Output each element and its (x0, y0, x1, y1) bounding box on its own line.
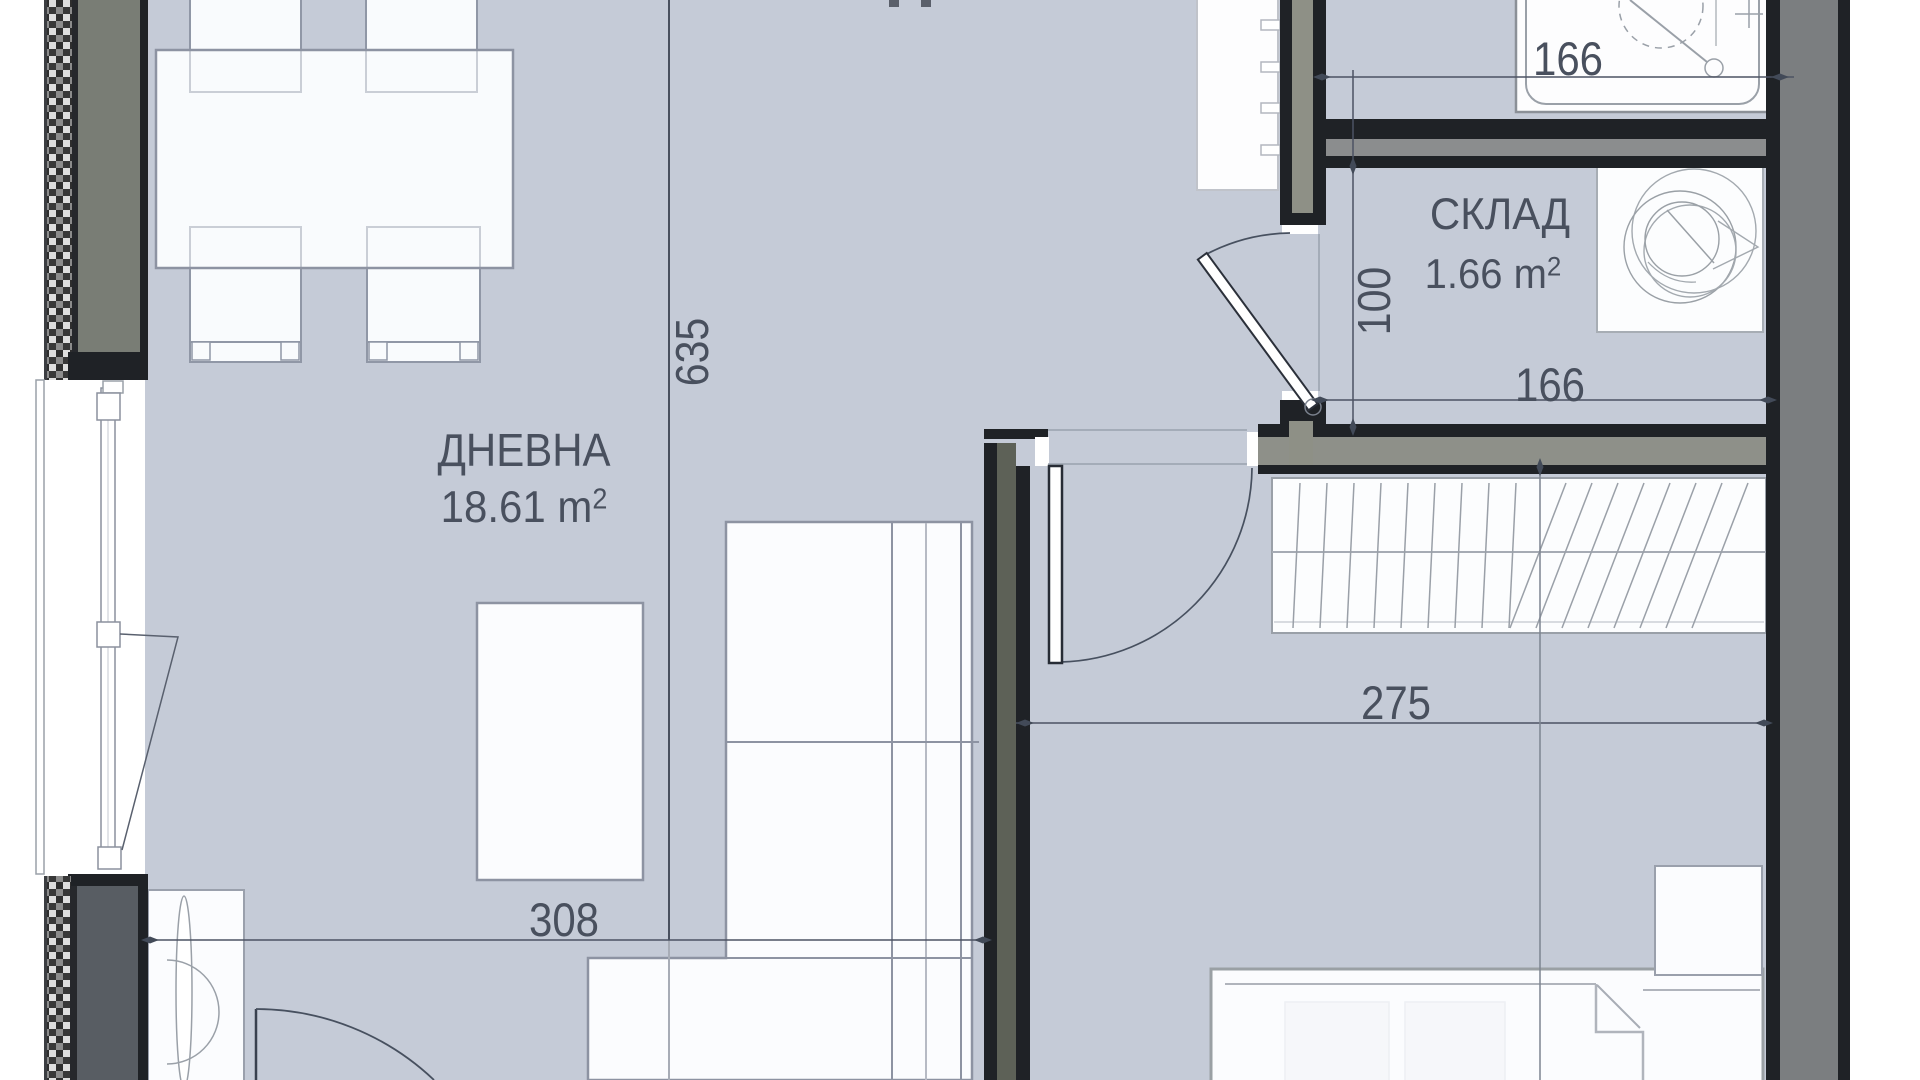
svg-text:308: 308 (529, 895, 599, 947)
svg-text:166: 166 (1533, 34, 1603, 86)
svg-text:СКЛАД: СКЛАД (1430, 190, 1570, 239)
svg-text:166: 166 (1515, 360, 1585, 412)
svg-text:100: 100 (1350, 267, 1401, 335)
svg-text:275: 275 (1361, 678, 1431, 730)
svg-text:1.66 m2: 1.66 m2 (1425, 250, 1562, 297)
svg-text:635: 635 (668, 318, 719, 386)
svg-text:18.61 m2: 18.61 m2 (441, 483, 608, 532)
svg-text:ДНЕВНА: ДНЕВНА (437, 425, 611, 476)
